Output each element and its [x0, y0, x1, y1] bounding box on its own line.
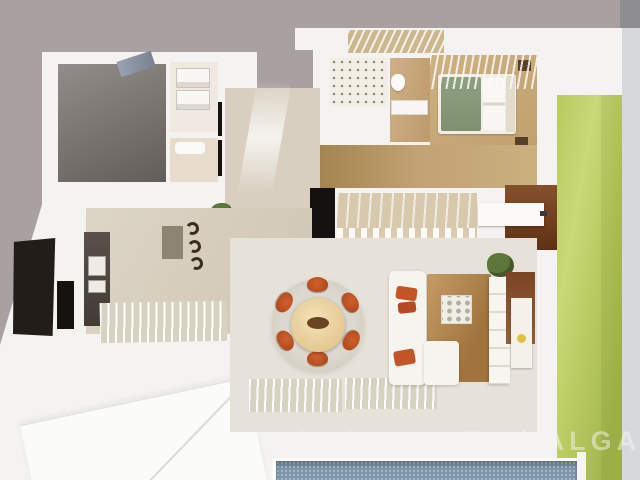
- pergola-roof: [348, 30, 444, 53]
- shade-slats: [100, 301, 228, 343]
- kitchen-island: [162, 226, 183, 259]
- door-opening: [218, 140, 222, 176]
- side-walkway: [622, 28, 640, 480]
- watermark: CASA & KEY | ALGARVE: [293, 426, 640, 462]
- ground-backdrop-band: [0, 28, 295, 52]
- tv-panel: [511, 298, 532, 368]
- lamp-dot: [517, 334, 526, 343]
- garage-room: [58, 64, 166, 182]
- dining-chair: [307, 277, 328, 292]
- stair-landing: [478, 203, 544, 226]
- table-centerpiece: [307, 317, 329, 329]
- washing-machine: [176, 68, 210, 88]
- bathroom-vanity: [391, 100, 428, 115]
- wood-hallway: [320, 145, 537, 188]
- floor-plan-render: CASA & KEY | ALGARVE: [0, 0, 640, 480]
- oven: [88, 256, 106, 276]
- sofa-pillow: [395, 286, 418, 302]
- toilet: [391, 74, 405, 91]
- stair-doorway: [310, 188, 335, 238]
- fridge-cabinet: [57, 281, 74, 329]
- wc-basin: [175, 142, 205, 154]
- ground-backdrop-top: [0, 0, 640, 28]
- dryer: [176, 90, 210, 110]
- shade-slats: [249, 379, 342, 412]
- sofa-pillow: [397, 301, 416, 314]
- coffee-table: [441, 295, 472, 324]
- backdrop-corner: [620, 0, 640, 28]
- landing-detail: [540, 211, 547, 216]
- lawn-shadow: [601, 95, 622, 480]
- dining-chair: [307, 351, 328, 366]
- sofa-chaise: [424, 341, 459, 385]
- dark-window: [13, 238, 57, 336]
- door-opening: [218, 102, 222, 136]
- shower-room: [330, 58, 388, 106]
- pergola-slats: [430, 55, 537, 89]
- microwave: [88, 280, 106, 293]
